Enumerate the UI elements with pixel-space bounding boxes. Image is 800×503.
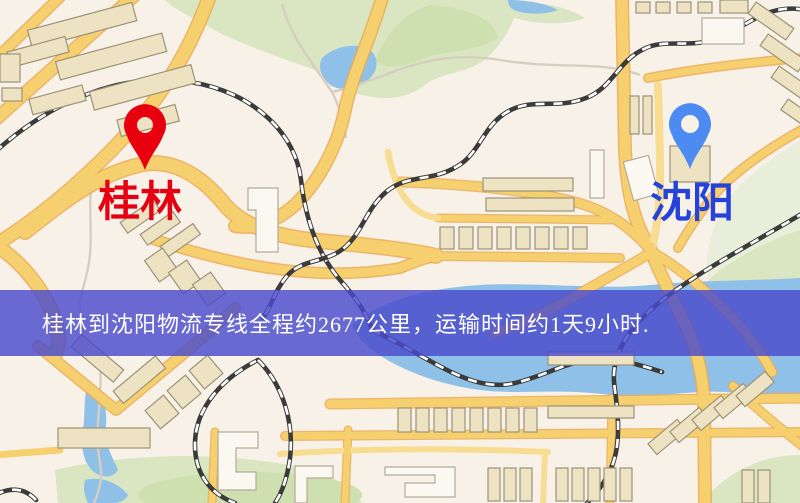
map-image: 桂林 沈阳 桂林到沈阳物流专线全程约2677公里，运输时间约1天9小时. xyxy=(0,0,800,503)
destination-label: 沈阳 xyxy=(650,180,734,227)
map-canvas[interactable]: 桂林 沈阳 xyxy=(0,0,800,503)
origin-label: 桂林 xyxy=(98,179,182,226)
route-info-text: 桂林到沈阳物流专线全程约2677公里，运输时间约1天9小时. xyxy=(42,307,650,339)
route-info-banner: 桂林到沈阳物流专线全程约2677公里，运输时间约1天9小时. xyxy=(0,290,800,356)
